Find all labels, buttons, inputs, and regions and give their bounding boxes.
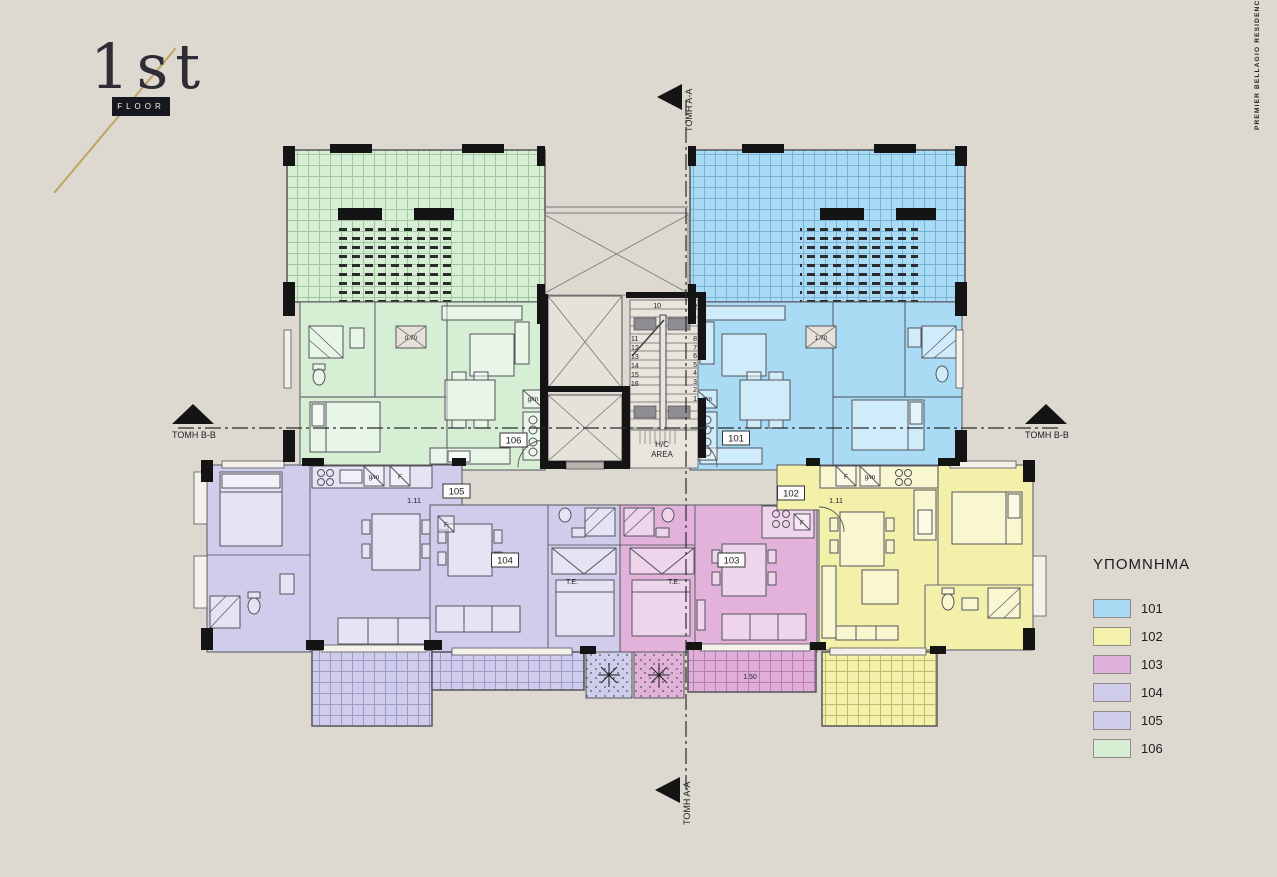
hc-area-label-line1: H/C xyxy=(655,440,669,449)
stair-number: 1 xyxy=(693,396,697,403)
unit-tag-103: 103 xyxy=(724,556,740,567)
stair-number: 5 xyxy=(693,362,697,369)
section-marker-aa-bottom: ΤΟΜΗ Α-Α xyxy=(655,777,692,825)
kitchen-label-f: F xyxy=(800,520,804,527)
dim-label: 1.11 xyxy=(829,496,843,505)
hc-area xyxy=(630,430,698,468)
stair-number: 3 xyxy=(693,379,697,386)
unit-105-region xyxy=(207,465,462,652)
unit-tag-106: 106 xyxy=(506,436,522,447)
wardrobe-label-te: T.E. xyxy=(668,579,680,586)
unit-tag-105: 105 xyxy=(449,487,465,498)
unit-tag-104: 104 xyxy=(497,556,513,567)
dim-label: 1.11 xyxy=(407,496,421,505)
section-label-bb-left: ΤΟΜΗ Β-Β xyxy=(172,430,216,440)
kitchen-label-f: F xyxy=(398,474,402,481)
stair-number: 13 xyxy=(631,354,639,361)
section-label-aa-bottom: ΤΟΜΗ Α-Α xyxy=(682,782,692,825)
stair-number: 10 xyxy=(653,303,661,310)
stair-number: 2 xyxy=(693,387,697,394)
section-label-aa-top: ΤΟΜΗ Α-Α xyxy=(684,89,694,132)
dim-label: 0.70 xyxy=(405,335,418,342)
kitchen-label-gm: g/m xyxy=(369,474,380,481)
kitchen-label-gm: g/m xyxy=(865,474,876,481)
stair-number: 9 xyxy=(693,303,697,310)
unit-104-region xyxy=(430,505,620,652)
stair-number: 11 xyxy=(631,336,638,343)
section-label-bb-right: ΤΟΜΗ Β-Β xyxy=(1025,430,1069,440)
unit-103-region xyxy=(620,505,817,652)
brand-vertical-text: PREMIER BELLAGIO RESIDENCES xyxy=(1254,0,1261,130)
floor-plan-drawing: ΤΟΜΗ Α-Α ΤΟΜΗ Α-Α ΤΟΜΗ Β-Β ΤΟΜΗ Β-Β 101 … xyxy=(0,0,1277,877)
central-core xyxy=(545,207,698,469)
stair-number: 4 xyxy=(693,370,697,377)
section-marker-bb-left: ΤΟΜΗ Β-Β xyxy=(172,404,216,440)
hc-area-label-line2: AREA xyxy=(651,450,673,459)
kitchen-label-gm: g/m xyxy=(528,396,539,403)
kitchen-label-f: F xyxy=(844,474,848,481)
stair-number: 6 xyxy=(693,353,697,360)
stair-number: 8 xyxy=(693,336,697,343)
dim-label: 1.50 xyxy=(743,674,757,681)
stairwell xyxy=(630,300,698,430)
floor-plan-sheet: { "logo": { "floor_number": "1st", "floo… xyxy=(0,0,1277,877)
balconies xyxy=(312,648,937,726)
stair-number: 14 xyxy=(631,363,639,370)
stair-number: 12 xyxy=(631,345,639,352)
unit-106-region xyxy=(287,150,545,470)
stair-number: 16 xyxy=(631,381,639,388)
kitchen-label-f: F xyxy=(444,522,448,529)
unit-tag-102: 102 xyxy=(783,489,799,500)
stair-number: 7 xyxy=(693,345,697,352)
stair-number: 15 xyxy=(631,372,639,379)
planter-right xyxy=(634,652,684,698)
wardrobe-label-te: T.E. xyxy=(566,579,578,586)
kitchen-label-gm: g/m xyxy=(702,396,713,403)
section-marker-bb-right: ΤΟΜΗ Β-Β xyxy=(1025,404,1069,440)
unit-101-region xyxy=(690,150,965,470)
section-marker-aa-top: ΤΟΜΗ Α-Α xyxy=(657,84,694,132)
unit-tag-101: 101 xyxy=(728,434,744,445)
planter-left xyxy=(586,652,632,698)
dim-label: 1.70 xyxy=(815,335,828,342)
